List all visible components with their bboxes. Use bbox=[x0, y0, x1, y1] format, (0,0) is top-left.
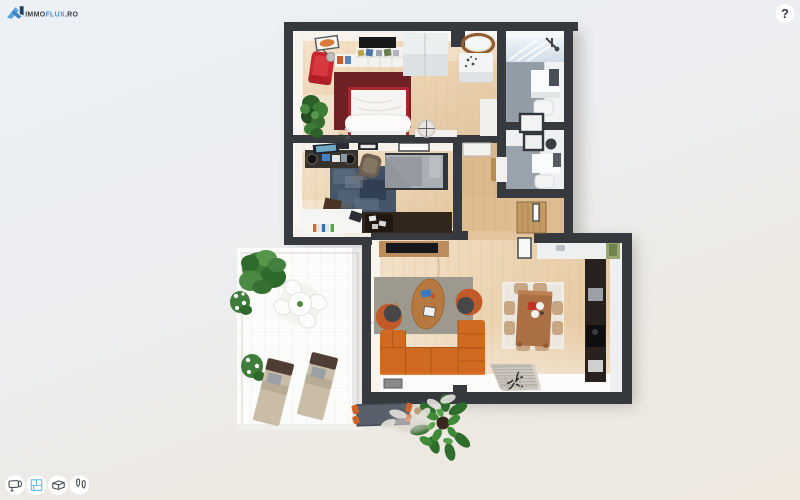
svg-text:IMMOFLUX.RO: IMMOFLUX.RO bbox=[25, 12, 78, 19]
svg-text:?: ? bbox=[781, 7, 789, 21]
